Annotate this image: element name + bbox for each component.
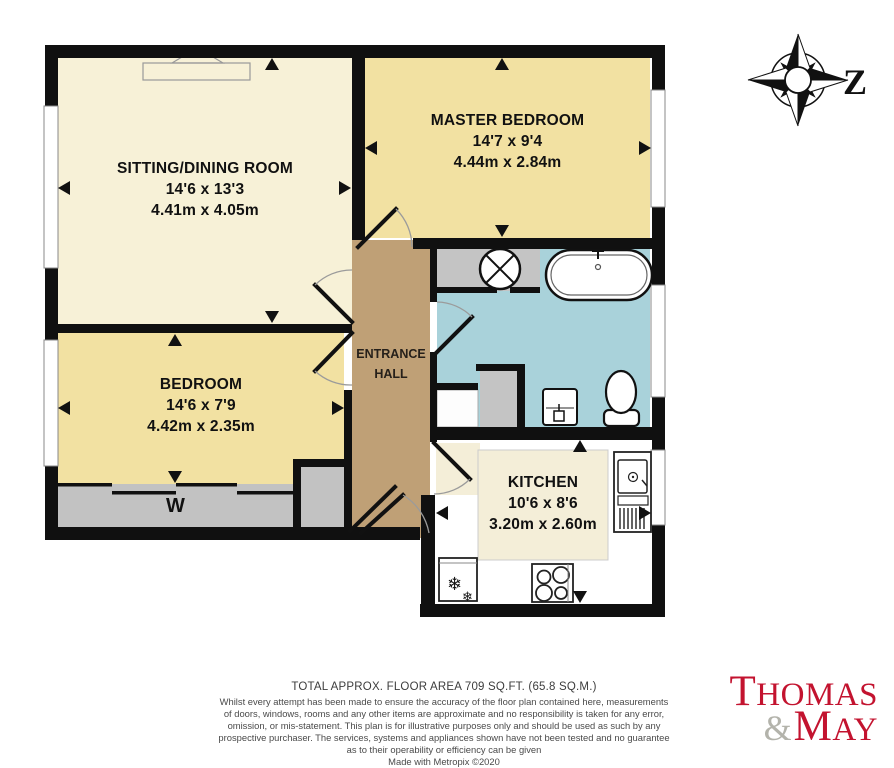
shower-icon: [480, 249, 520, 289]
window-bedroom-left: [44, 340, 58, 466]
logo-word-may: MAY: [794, 709, 878, 748]
window-master-right: [651, 90, 665, 207]
bay-window: [140, 57, 253, 82]
logo-ampersand: &: [764, 708, 792, 748]
compass-rose-icon: Z: [748, 34, 867, 126]
wardrobe-label: W: [58, 495, 293, 518]
room-name: KITCHEN: [460, 472, 626, 493]
room-name: MASTER BEDROOM: [365, 110, 650, 131]
room-label-entrance-hall: ENTRANCE HALL: [350, 344, 432, 384]
room-size-imperial: 14'6 x 13'3: [58, 179, 352, 200]
footer: TOTAL APPROX. FLOOR AREA 709 SQ.FT. (65.…: [114, 681, 774, 768]
compass-north-letter: Z: [843, 62, 867, 102]
hall-label-line1: ENTRANCE: [350, 344, 432, 364]
room-size-imperial: 14'7 x 9'4: [365, 131, 650, 152]
room-size-metric: 3.20m x 2.60m: [460, 514, 626, 535]
disclaimer-text: Whilst every attempt has been made to en…: [218, 696, 670, 756]
window-kitchen-right: [651, 450, 665, 525]
metropix-credit: Made with Metropix ©2020: [114, 756, 774, 768]
room-size-metric: 4.44m x 2.84m: [365, 152, 650, 173]
toilet-icon: [604, 371, 639, 426]
room-name: BEDROOM: [58, 374, 344, 395]
window-bathroom-right: [651, 285, 665, 397]
room-label-kitchen: KITCHEN 10'6 x 8'6 3.20m x 2.60m: [460, 472, 626, 535]
snowflake-icon: ❄: [462, 590, 473, 605]
room-size-imperial: 10'6 x 8'6: [460, 493, 626, 514]
agency-logo: THOMAS &MAY: [730, 674, 878, 749]
window-sitting-left: [44, 106, 58, 268]
hob-icon: [532, 564, 573, 602]
hall-label-line2: HALL: [350, 364, 432, 384]
room-label-sitting-dining: SITTING/DINING ROOM 14'6 x 13'3 4.41m x …: [58, 158, 352, 221]
room-label-master-bedroom: MASTER BEDROOM 14'7 x 9'4 4.44m x 2.84m: [365, 110, 650, 173]
basin-icon: [543, 389, 577, 425]
room-name: SITTING/DINING ROOM: [58, 158, 352, 179]
bath-icon: [546, 250, 652, 300]
room-label-bedroom: BEDROOM 14'6 x 7'9 4.42m x 2.35m: [58, 374, 344, 437]
room-size-metric: 4.41m x 4.05m: [58, 200, 352, 221]
snowflake-icon: ❄: [447, 574, 462, 595]
room-size-imperial: 14'6 x 7'9: [58, 395, 344, 416]
total-floor-area: TOTAL APPROX. FLOOR AREA 709 SQ.FT. (65.…: [114, 681, 774, 693]
room-size-metric: 4.42m x 2.35m: [58, 416, 344, 437]
fridge-icon: ❄ ❄: [439, 558, 477, 605]
floorplan-page: ❄ ❄: [0, 0, 894, 768]
